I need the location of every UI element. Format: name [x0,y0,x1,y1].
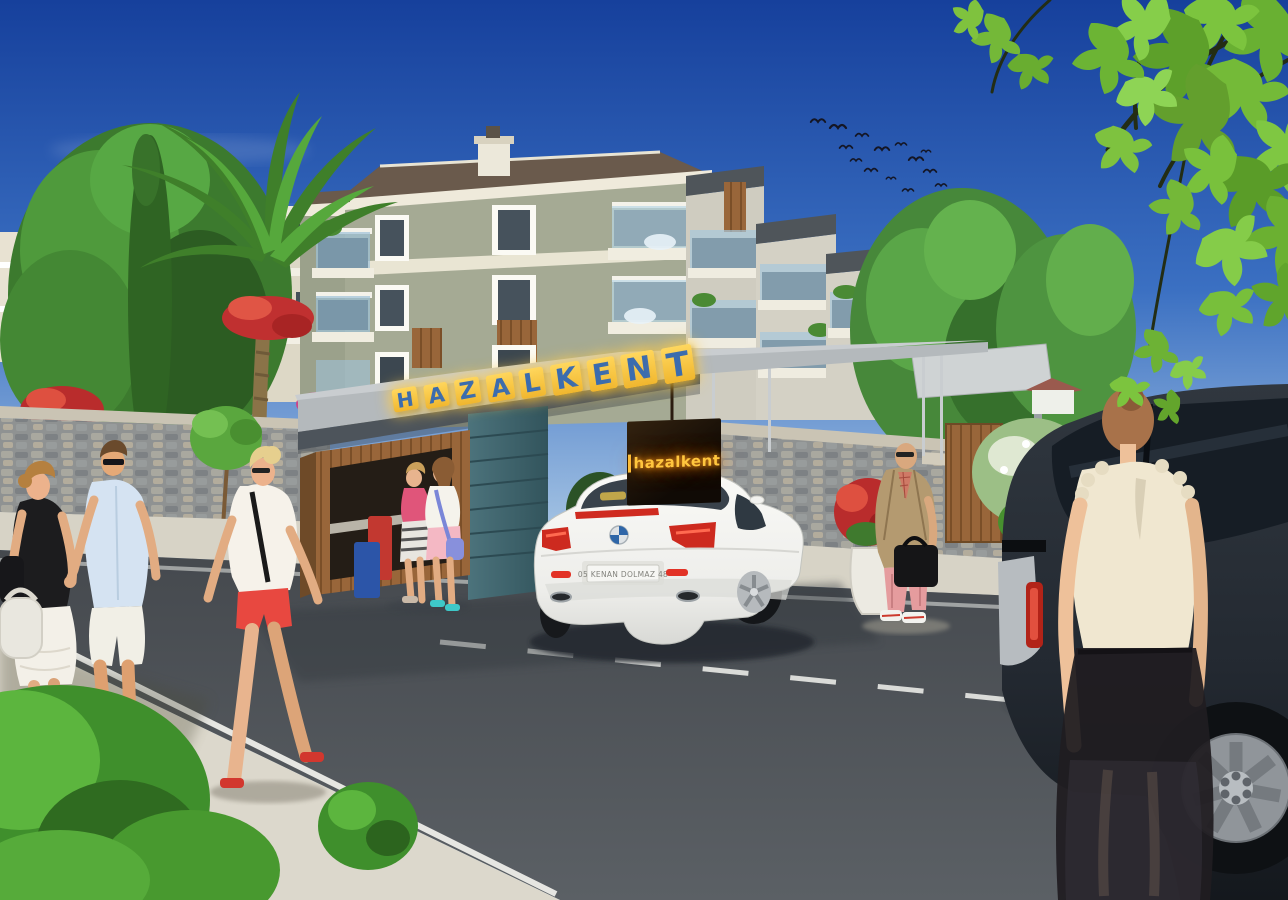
sign-letter: A [423,381,450,409]
black-handbag [0,556,24,604]
sign-letter: T [661,344,696,385]
blue-post [354,542,380,598]
sign-letter: K [549,360,583,396]
gate-panel-sign-text: hazalkent [628,451,721,472]
sign-letter: H [391,386,419,413]
briefcase [894,545,938,587]
sign-letter: Z [454,376,482,406]
gate-panel-sign: hazalkent [627,418,721,505]
license-plate-text: 05 KENAN DOLMAZ 48 [578,570,668,579]
architectural-render-scene: 05 KENAN DOLMAZ 48 [0,0,1288,900]
white-handbag [0,598,42,658]
sign-letter: L [518,366,546,399]
car-taillight-left [542,527,571,551]
sign-letter: E [586,356,618,393]
blue-bag [446,538,464,560]
sign-letter: A [485,372,515,403]
sign-letter: N [620,349,658,389]
